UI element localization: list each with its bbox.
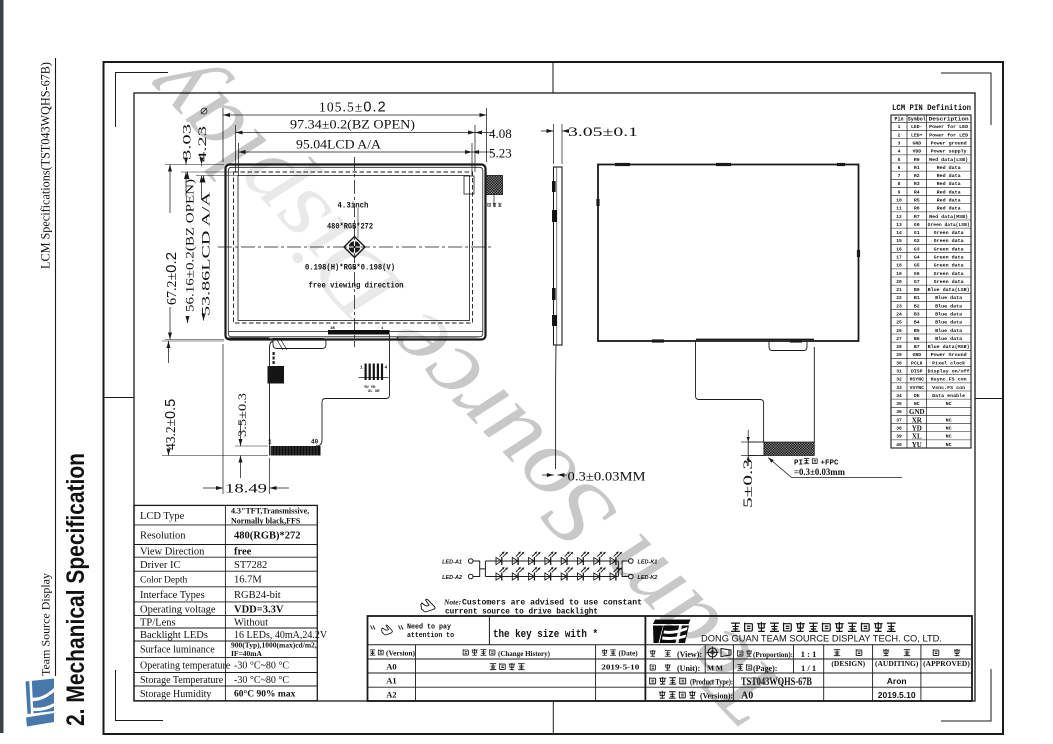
svg-text:28: 28 [896,344,902,350]
svg-text:480*RGB*272: 480*RGB*272 [327,222,373,232]
svg-text:Pin: Pin [894,116,903,122]
svg-text:1: 1 [360,365,363,371]
svg-text:XL XR: XL XR [368,390,380,394]
svg-text:free: free [234,547,252,558]
svg-text:2: 2 [898,132,901,138]
svg-text:R7: R7 [914,214,920,220]
svg-text:Power ground: Power ground [931,142,968,147]
svg-text:PCLK: PCLK [911,360,923,366]
svg-text:4: 4 [385,365,388,371]
svg-text:(View):: (View): [677,650,702,659]
svg-text:6: 6 [898,165,901,171]
svg-text:-30 °C~80 °C: -30 °C~80 °C [234,675,289,686]
svg-text:60°C 90% max: 60°C 90% max [234,689,296,700]
svg-text:Storage Temperature: Storage Temperature [140,675,224,686]
svg-text:19: 19 [896,271,902,277]
svg-text:B1: B1 [914,295,920,301]
svg-text:Display on/off: Display on/off [928,370,971,375]
svg-text:B0: B0 [914,287,920,293]
svg-text:Green data: Green data [934,247,965,252]
svg-text:Storage Humidity: Storage Humidity [140,689,211,700]
svg-text:(Change History): (Change History) [498,649,550,658]
svg-text:16.7M: 16.7M [234,575,262,586]
svg-text:11: 11 [896,206,902,212]
svg-text:Blue data: Blue data [935,304,963,309]
svg-text:G7: G7 [914,279,920,285]
svg-text:Power for LED: Power for LED [929,133,969,138]
svg-text:1: 1 [898,124,901,130]
svg-text:36: 36 [896,409,902,415]
svg-text:NC: NC [914,401,920,407]
svg-text:DISP: DISP [911,369,923,375]
svg-text:LED-A1: LED-A1 [442,560,462,566]
svg-text:Green data: Green data [934,231,965,236]
svg-text:Blue data: Blue data [935,329,963,334]
svg-text:R0: R0 [914,157,920,163]
svg-text:67.2±0.2: 67.2±0.2 [163,252,180,305]
svg-text:A2: A2 [386,690,396,700]
svg-text:0.3±0.03MM: 0.3±0.03MM [568,470,646,484]
svg-text:M M: M M [707,664,723,673]
svg-text:5.23: 5.23 [489,146,512,161]
svg-text:17: 17 [896,255,902,261]
svg-text:Green data: Green data [934,264,965,269]
svg-text:A1: A1 [386,676,396,686]
svg-text:(DESIGN): (DESIGN) [831,659,865,668]
svg-text:Customers are advised to use c: Customers are advised to use constant [462,599,642,608]
svg-text:TST043WQHS-67B: TST043WQHS-67B [741,676,812,688]
svg-text:1 / 1: 1 / 1 [801,663,816,673]
svg-text:Red data: Red data [937,199,962,204]
svg-text:Vsnc.FS con: Vsnc.FS con [932,387,966,391]
svg-text:Resolution: Resolution [140,530,186,541]
svg-text:53.86LCD A/A: 53.86LCD A/A [201,191,213,316]
svg-text:XL: XL [912,433,922,441]
svg-text:TP/Lens: TP/Lens [140,617,176,628]
svg-text:R6: R6 [914,206,920,212]
svg-text:DONG GUAN TEAM SOURCE DISPLAY: DONG GUAN TEAM SOURCE DISPLAY TECH. CO, … [701,634,942,645]
svg-text:95.04LCD A/A: 95.04LCD A/A [296,137,382,152]
svg-text:R2: R2 [914,173,920,179]
svg-text:Power supply: Power supply [931,150,968,155]
svg-text:LCD Type: LCD Type [140,511,185,522]
svg-text:GND: GND [912,141,921,147]
svg-text:Blue data: Blue data [935,296,963,301]
svg-text:33: 33 [896,385,902,391]
svg-text:DE: DE [914,393,920,399]
svg-text:Pixel clock: Pixel clock [932,361,966,366]
svg-text:Green data: Green data [934,239,965,244]
svg-text:HSYNC: HSYNC [910,377,925,383]
svg-text:13: 13 [896,222,902,228]
svg-text:-30 °C~80 °C: -30 °C~80 °C [234,660,289,671]
svg-text:37: 37 [896,417,902,423]
svg-text:B5: B5 [914,328,920,334]
svg-text:Blue data(LSB): Blue data(LSB) [928,288,970,293]
svg-text:B4: B4 [914,320,920,326]
svg-text:VDD: VDD [912,149,921,155]
svg-text:B6: B6 [914,336,920,342]
svg-text:LED-K2: LED-K2 [638,575,658,581]
svg-text:(Date): (Date) [619,650,639,658]
svg-text:7: 7 [898,173,901,179]
svg-text:NC: NC [946,403,953,407]
svg-text:VSYNC: VSYNC [910,385,925,391]
svg-text:10: 10 [896,198,902,204]
svg-text:Red data(LSB): Red data(LSB) [929,158,968,163]
svg-text:=0.3±0.03mm: =0.3±0.03mm [794,467,845,477]
svg-text:Red data: Red data [937,166,962,171]
svg-text:Blue data(MSB): Blue data(MSB) [928,345,970,350]
svg-text:Surface luminance: Surface luminance [140,645,215,656]
svg-text:15: 15 [896,238,902,244]
svg-text:NC: NC [946,419,953,423]
svg-text:22: 22 [896,295,902,301]
svg-text:GND: GND [912,352,921,358]
svg-text:35: 35 [896,401,902,407]
svg-text:LED-A2: LED-A2 [442,575,462,581]
svg-text:NC: NC [946,436,953,440]
svg-text:Symbol: Symbol [908,116,926,122]
svg-text:free viewing direction: free viewing direction [309,281,404,291]
svg-text:Blue data: Blue data [935,321,963,326]
svg-text:Color Depth: Color Depth [140,575,187,585]
svg-text:B3: B3 [914,312,920,318]
svg-text:Driver IC: Driver IC [140,560,181,571]
svg-text:97.34±0.2(BZ OPEN): 97.34±0.2(BZ OPEN) [290,117,415,132]
svg-text:Power for LED: Power for LED [929,125,969,130]
svg-text:40: 40 [311,439,319,446]
svg-text:20: 20 [896,279,902,285]
svg-text:B7: B7 [914,344,920,350]
svg-text:Hsync.FS con: Hsync.FS con [931,379,968,383]
svg-text:R3: R3 [914,181,920,187]
svg-text:NC: NC [946,444,953,448]
svg-text:2. Mechanical Specification: 2. Mechanical Specification [62,453,90,726]
svg-text:5±0.3: 5±0.3 [740,459,755,508]
svg-text:Description: Description [929,116,969,122]
svg-text:14: 14 [896,230,902,236]
svg-text:the key size with *: the key size with * [493,629,598,641]
svg-text:Green data(LSB): Green data(LSB) [928,223,970,228]
svg-text:16 LEDs, 40mA,24.2V: 16 LEDs, 40mA,24.2V [234,630,328,641]
svg-text:480(RGB)*272: 480(RGB)*272 [234,530,301,541]
svg-text:(Proportion):: (Proportion): [753,650,793,659]
svg-text:Aron: Aron [887,676,907,686]
svg-text:Operating voltage: Operating voltage [140,604,216,615]
svg-text:31: 31 [896,369,902,375]
svg-text:XR: XR [912,416,923,424]
svg-text:Data enable: Data enable [932,394,966,399]
svg-text:4: 4 [898,149,901,155]
svg-text:B2: B2 [914,303,920,309]
svg-text:4.3inch: 4.3inch [338,201,369,211]
svg-text:NC: NC [946,428,953,432]
svg-text:3.05±0.1: 3.05±0.1 [568,124,638,139]
svg-text:Green data: Green data [934,280,965,285]
svg-text:Power Ground: Power Ground [931,353,968,358]
svg-text:LED+: LED+ [911,132,923,138]
svg-text:VDD=3.3V: VDD=3.3V [234,604,284,615]
svg-text:(APPROVED): (APPROVED) [923,659,970,668]
svg-text:ST7282: ST7282 [234,560,267,571]
svg-text:(Unit):: (Unit): [677,664,700,673]
svg-text:attention to: attention to [407,632,454,640]
svg-text:(AUDITING): (AUDITING) [875,659,919,668]
svg-text:Normally black,FFS: Normally black,FFS [231,516,301,525]
svg-text:4.08: 4.08 [489,126,512,141]
svg-text:LED-K1: LED-K1 [638,560,658,566]
svg-text:Operating temperature: Operating temperature [140,660,231,671]
svg-text:Blue data: Blue data [935,337,963,342]
svg-text:(Page):: (Page): [753,664,777,673]
svg-text:(Product Type):: (Product Type): [690,678,733,687]
svg-text:LED-: LED- [911,124,923,130]
svg-text:29: 29 [896,352,902,358]
svg-text:32: 32 [896,377,902,383]
svg-text:1: 1 [268,439,272,446]
svg-text:Interface Types: Interface Types [140,590,205,601]
svg-text:18: 18 [896,263,902,269]
svg-text:Red data: Red data [937,207,962,212]
svg-text:Backlight LEDs: Backlight LEDs [140,630,208,641]
svg-text:2019.5.10: 2019.5.10 [878,690,916,700]
svg-text:LCM Specifications(TST043WQHS-: LCM Specifications(TST043WQHS-67B) [38,62,53,269]
svg-text:5: 5 [898,157,901,163]
svg-text:Team Source Display: Team Source Display [39,573,53,676]
svg-text:1 : 1: 1 : 1 [801,649,817,659]
svg-text:Green data: Green data [934,272,965,277]
svg-text:4.23: 4.23 [197,126,209,162]
svg-text:12: 12 [896,214,902,220]
svg-text:Red data(MSB): Red data(MSB) [929,215,968,220]
svg-text:G4: G4 [914,255,920,261]
svg-text:23: 23 [896,303,902,309]
svg-text:G3: G3 [914,246,920,252]
svg-text:G5: G5 [914,263,920,269]
svg-text:G2: G2 [914,238,920,244]
svg-text:R5: R5 [914,198,920,204]
svg-text:Blue data: Blue data [935,313,963,318]
svg-text:Note:: Note: [443,598,461,607]
svg-text:Without: Without [234,617,268,628]
svg-text:1B: 1B [330,327,335,331]
svg-text:21: 21 [896,287,902,293]
svg-text:105.5±0.2: 105.5±0.2 [319,100,387,116]
svg-text:56.16±0.2(BZ OPEN): 56.16±0.2(BZ OPEN) [185,179,197,312]
svg-text:9: 9 [898,189,901,195]
svg-text:Red data: Red data [937,190,962,195]
svg-text:34: 34 [896,393,902,399]
svg-text:4.3"TFT,Transmissive,: 4.3"TFT,Transmissive, [231,507,309,516]
svg-text:GND: GND [909,408,925,416]
svg-text:RGB24-bit: RGB24-bit [234,590,281,601]
svg-text:YD: YD [912,425,922,433]
svg-text:IF=40mA: IF=40mA [231,649,263,658]
svg-text:26: 26 [896,328,902,334]
svg-text:3.5±0.3: 3.5±0.3 [237,393,249,437]
svg-text:A0: A0 [741,691,753,702]
svg-text:View Direction: View Direction [140,547,205,558]
svg-text:16: 16 [896,246,902,252]
svg-text:LCM PIN Definition: LCM PIN Definition [892,104,971,113]
svg-text:G1: G1 [914,230,920,236]
svg-text:A0: A0 [386,662,396,672]
svg-text:G6: G6 [914,271,920,277]
svg-text:18.49: 18.49 [225,481,267,496]
svg-text:27: 27 [896,336,902,342]
svg-text:G0: G0 [914,222,920,228]
svg-text:38: 38 [896,426,902,432]
svg-text:24: 24 [896,312,902,318]
svg-text:40: 40 [896,442,902,448]
svg-text:39: 39 [896,434,902,440]
svg-text:43.2±0.5: 43.2±0.5 [163,399,179,450]
svg-text:30: 30 [896,360,902,366]
svg-text:25: 25 [896,320,902,326]
svg-text:YU: YU [912,441,922,449]
svg-text:(Version): (Version) [386,650,416,658]
svg-text:Red data: Red data [937,182,962,187]
svg-text:0.198(H)*RGB*0.198(V): 0.198(H)*RGB*0.198(V) [305,263,395,273]
svg-text:Red data: Red data [937,174,962,179]
svg-text:Need to pay: Need to pay [407,623,452,631]
svg-text:8: 8 [898,181,901,187]
svg-text:3.03: 3.03 [182,124,194,160]
svg-text:(Version):: (Version): [700,691,733,700]
svg-text:R1: R1 [914,165,920,171]
svg-text:2019-5-10: 2019-5-10 [601,662,639,671]
svg-text:Green data: Green data [934,256,965,261]
svg-text:3: 3 [898,141,901,147]
svg-text:R4: R4 [914,189,920,195]
